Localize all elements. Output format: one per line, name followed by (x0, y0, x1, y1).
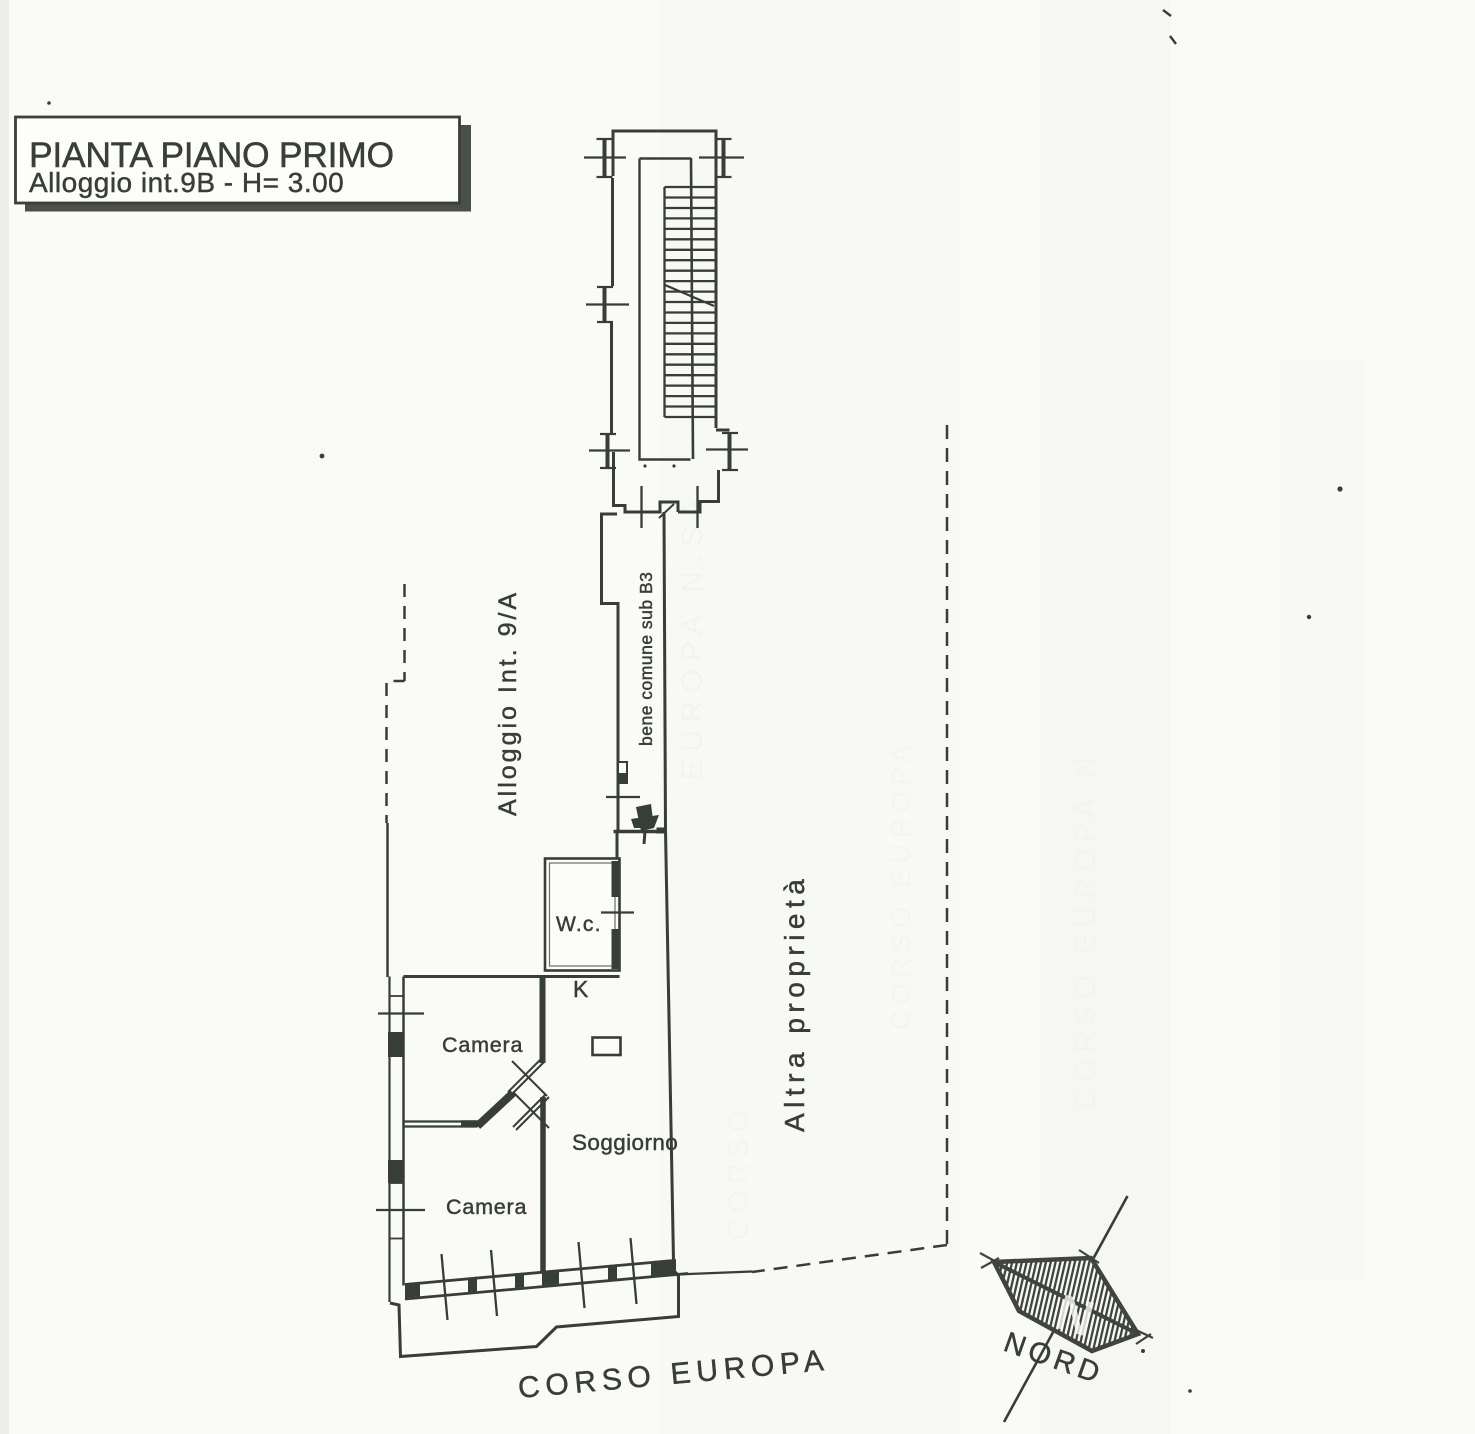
svg-text:Altra proprietà: Altra proprietà (779, 874, 810, 1132)
svg-text:EUROPA N.SA: EUROPA N.SA (676, 491, 709, 780)
svg-text:CORSO: CORSO (723, 1104, 755, 1240)
svg-text:CORSO EUROPA: CORSO EUROPA (886, 739, 916, 1030)
svg-text:Soggiorno: Soggiorno (572, 1130, 678, 1155)
svg-text:Alloggio Int. 9/A: Alloggio Int. 9/A (494, 590, 522, 816)
svg-text:Camera: Camera (446, 1195, 527, 1219)
svg-text:bene comune sub B3: bene comune sub B3 (636, 572, 656, 746)
svg-text:Camera: Camera (442, 1033, 523, 1057)
svg-text:K: K (573, 976, 589, 1002)
svg-text:Alloggio int.9B - H= 3.00: Alloggio int.9B - H= 3.00 (29, 167, 344, 198)
svg-text:CORSO EUROPA N: CORSO EUROPA N (1070, 750, 1102, 1110)
svg-text:W.c.: W.c. (556, 913, 602, 936)
